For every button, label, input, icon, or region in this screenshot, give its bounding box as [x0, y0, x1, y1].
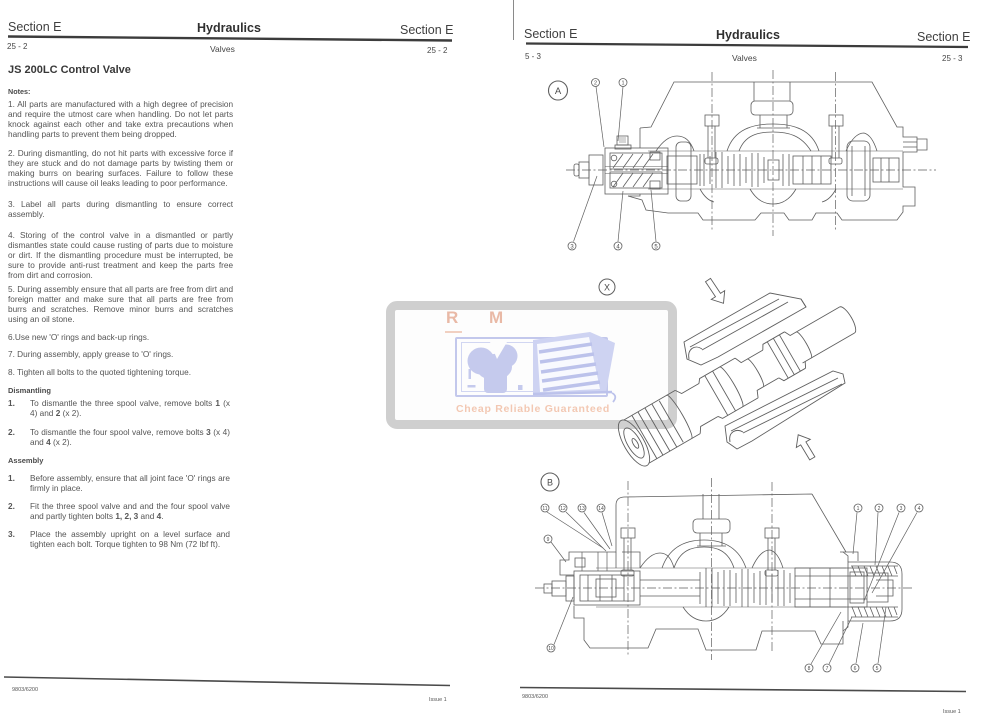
svg-text:3: 3 — [900, 506, 903, 512]
svg-text:8: 8 — [808, 666, 811, 672]
svg-text:6: 6 — [854, 666, 857, 672]
svg-text:7: 7 — [826, 666, 829, 672]
svg-text:4: 4 — [918, 506, 921, 512]
svg-text:2: 2 — [878, 506, 881, 512]
svg-text:11: 11 — [542, 506, 547, 512]
svg-text:B: B — [547, 478, 553, 488]
svg-text:1: 1 — [857, 506, 860, 512]
svg-text:12: 12 — [560, 506, 566, 512]
svg-text:14: 14 — [598, 506, 604, 512]
svg-text:9: 9 — [547, 537, 550, 543]
svg-text:10: 10 — [548, 646, 554, 652]
svg-text:13: 13 — [579, 506, 585, 512]
svg-text:5: 5 — [876, 666, 879, 672]
